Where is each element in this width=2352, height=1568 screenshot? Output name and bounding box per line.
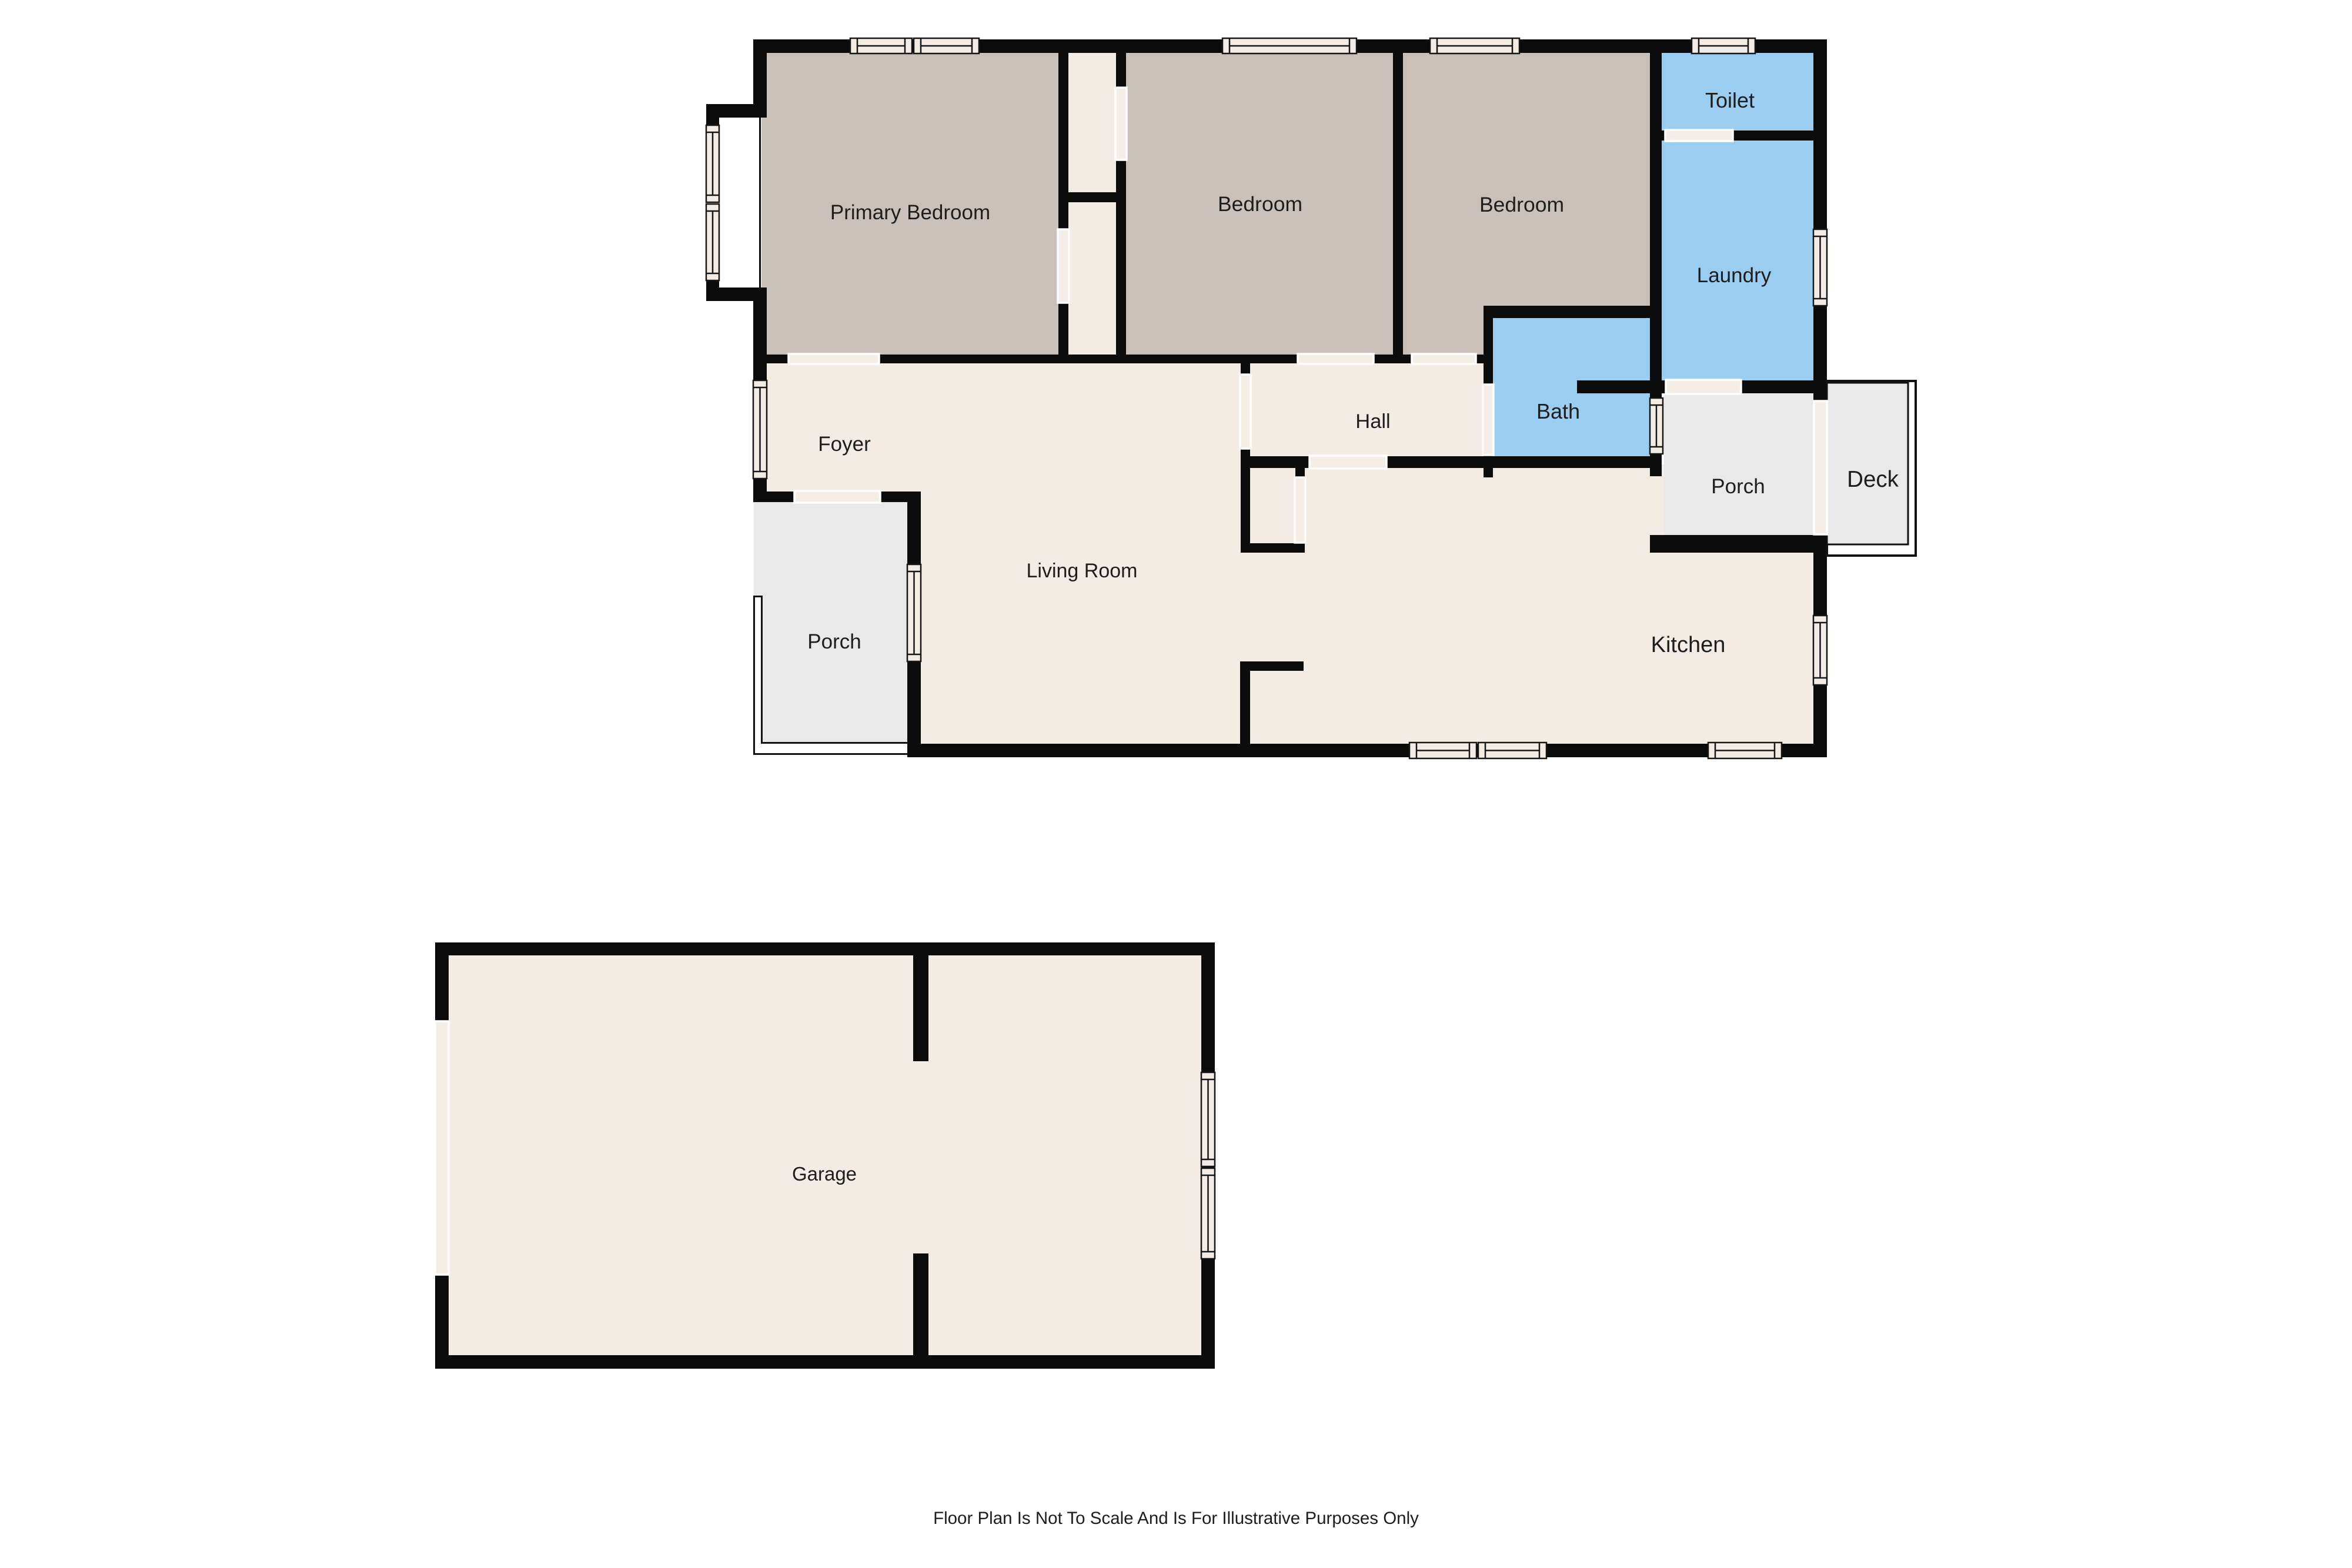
svg-text:Porch: Porch [1711, 475, 1765, 498]
svg-text:Toilet: Toilet [1705, 88, 1755, 112]
svg-text:Bedroom: Bedroom [1218, 192, 1302, 216]
svg-text:Garage: Garage [792, 1163, 857, 1185]
svg-text:Deck: Deck [1847, 467, 1899, 492]
svg-text:Bedroom: Bedroom [1479, 193, 1564, 216]
svg-text:Primary Bedroom: Primary Bedroom [830, 201, 990, 224]
svg-text:Bath: Bath [1536, 399, 1580, 423]
svg-text:Laundry: Laundry [1697, 264, 1772, 287]
svg-text:Kitchen: Kitchen [1651, 633, 1726, 657]
svg-text:Floor Plan Is Not To Scale And: Floor Plan Is Not To Scale And Is For Il… [933, 1509, 1419, 1528]
svg-text:Porch: Porch [807, 630, 861, 653]
svg-text:Hall: Hall [1355, 410, 1390, 433]
svg-text:Foyer: Foyer [818, 433, 871, 456]
svg-text:Living Room: Living Room [1027, 560, 1138, 582]
